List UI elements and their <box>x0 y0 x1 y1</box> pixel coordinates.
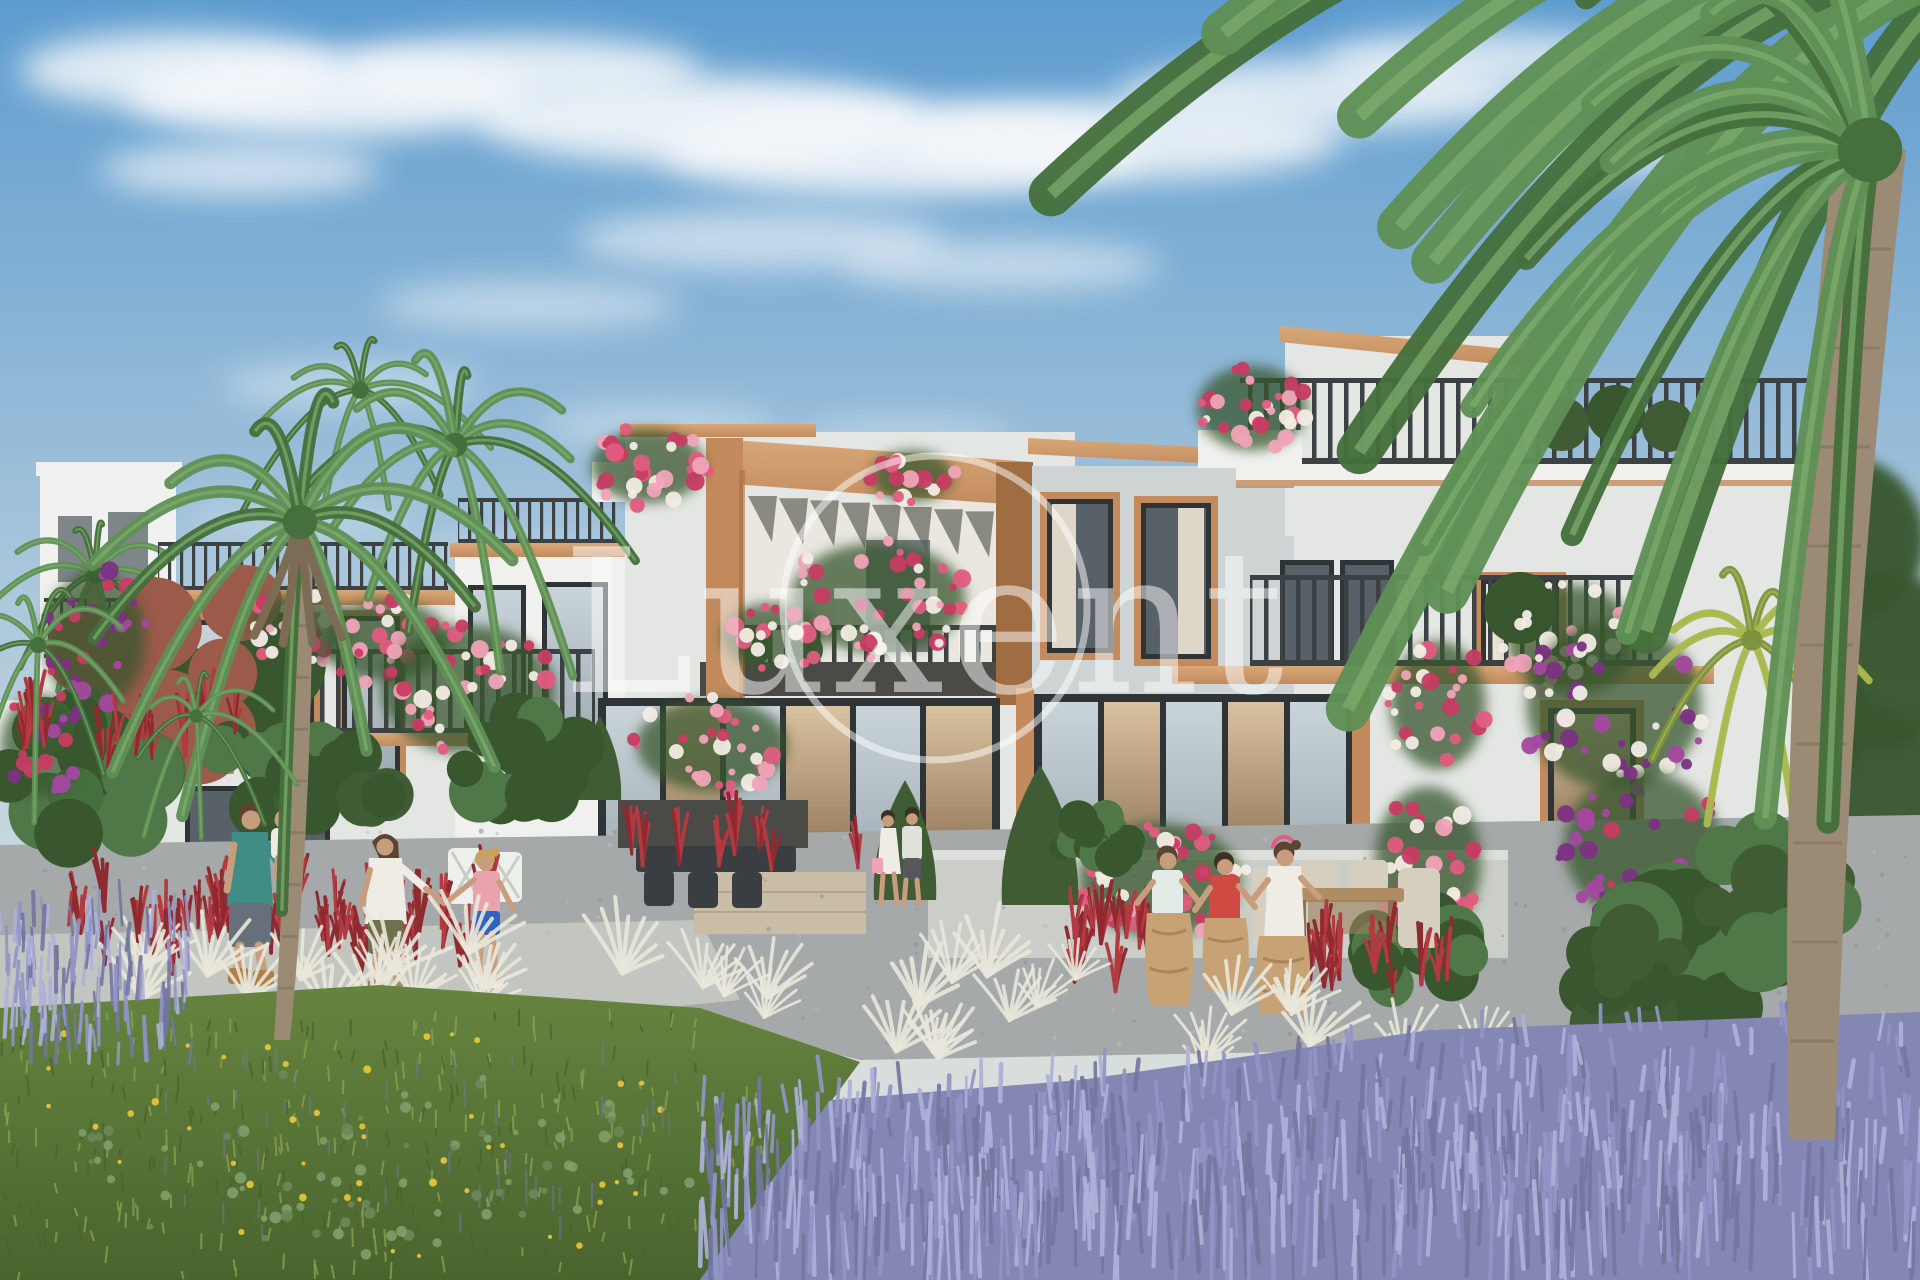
burlap-sack <box>1145 913 1193 1006</box>
rendering-canvas: Luxent <box>0 0 1920 1280</box>
watermark-text: Luxent <box>562 507 1288 740</box>
architectural-rendering: Luxent <box>0 0 1920 1280</box>
entry-deck <box>694 872 866 934</box>
